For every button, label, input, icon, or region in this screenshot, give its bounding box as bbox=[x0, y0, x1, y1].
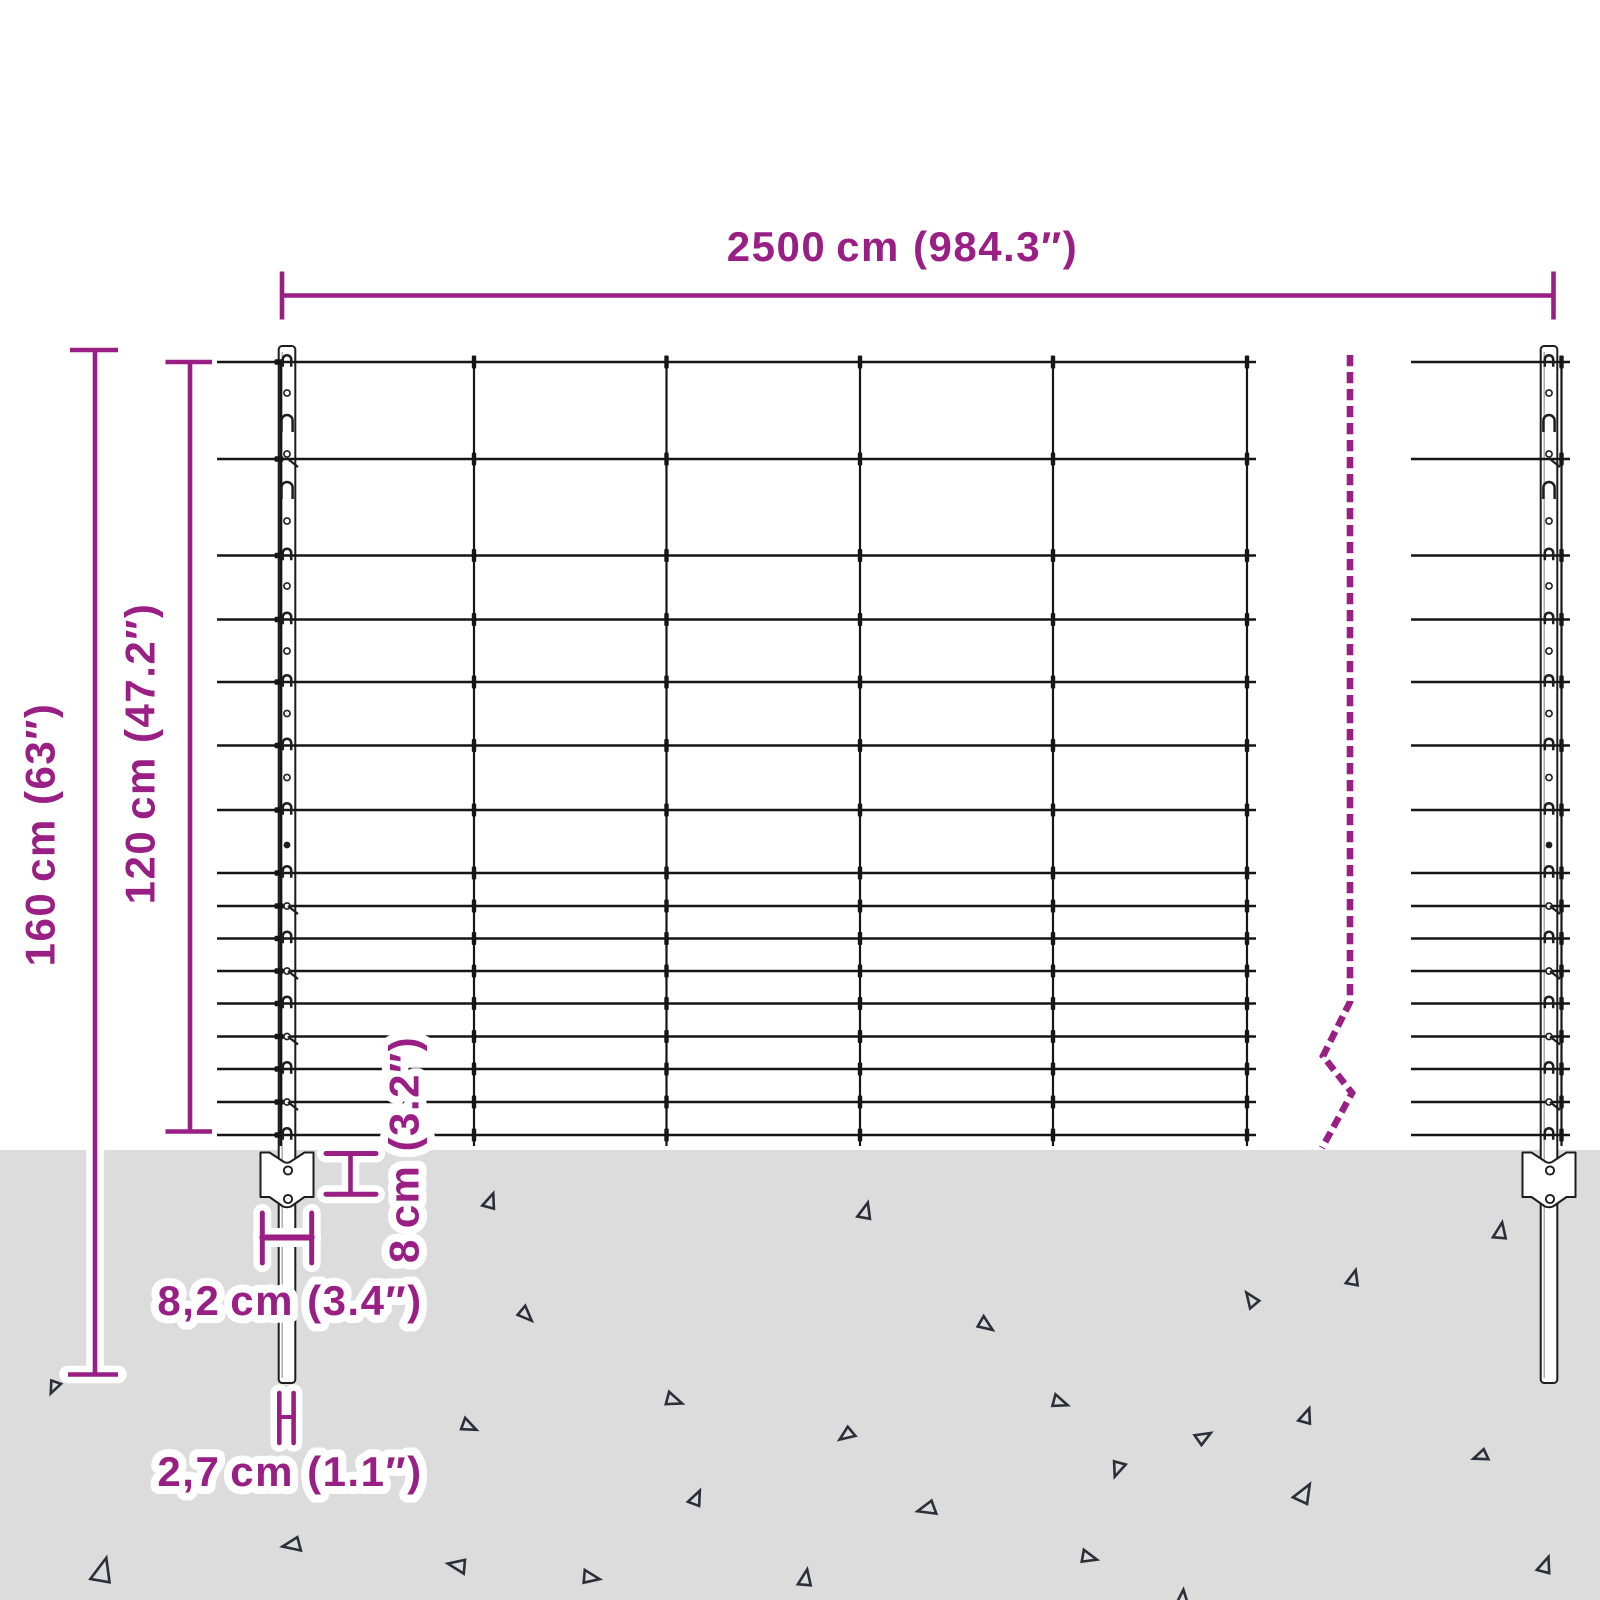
svg-text:2500 cm (984.3″): 2500 cm (984.3″) bbox=[727, 223, 1078, 270]
svg-text:120 cm (47.2″): 120 cm (47.2″) bbox=[117, 603, 164, 905]
svg-text:8 cm (3.2″): 8 cm (3.2″) bbox=[381, 1036, 428, 1263]
svg-text:160 cm (63″): 160 cm (63″) bbox=[16, 703, 63, 967]
svg-text:8,2 cm (3.4″): 8,2 cm (3.4″) bbox=[157, 1277, 422, 1324]
svg-text:2,7 cm (1.1″): 2,7 cm (1.1″) bbox=[157, 1448, 422, 1495]
